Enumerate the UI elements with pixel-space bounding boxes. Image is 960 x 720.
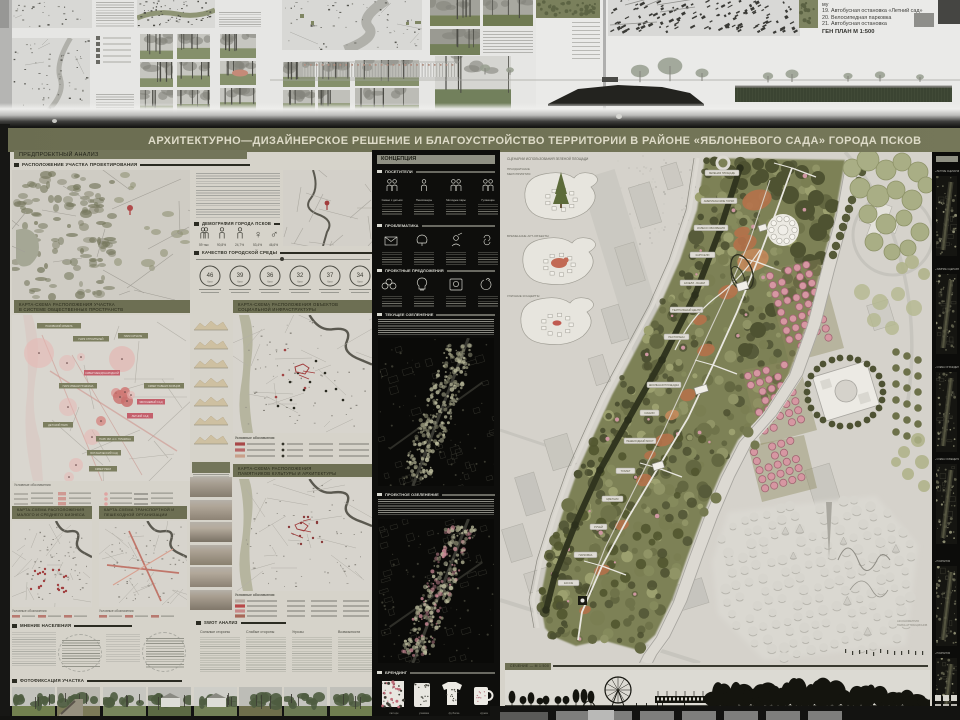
svg-text:балл: балл [237,281,243,284]
svg-text:ЛЕТНИЙ САД: ЛЕТНИЙ САД [132,414,149,418]
svg-text:ПАРК ИМЕНИ ПУШКИНА: ПАРК ИМЕНИ ПУШКИНА [63,384,94,388]
svg-text:КОЛЕСО ОБОЗРЕНИЯ: КОЛЕСО ОБОЗРЕНИЯ [697,226,725,230]
svg-text:балл: балл [357,281,363,284]
svg-text:59 тыс: 59 тыс [199,243,209,247]
svg-text:ПАРК СТРОИТЕЛЕЙ: ПАРК СТРОИТЕЛЕЙ [78,337,103,341]
svg-text:балл: балл [297,281,303,284]
svg-text:СКВЕР МЕЖДУНАРОДНОЙ: СКВЕР МЕЖДУНАРОДНОЙ [85,371,119,375]
svg-text:балл: балл [207,281,213,284]
svg-text:ПАРКОВКА: ПАРКОВКА [579,553,593,557]
svg-text:ТУАЛЕТ: ТУАЛЕТ [621,469,631,473]
svg-text:РУЧЕЙ: РУЧЕЙ [594,525,603,529]
svg-text:ТЕАТРАЛЬНЫЙ ЦЕНТР: ТЕАТРАЛЬНЫЙ ЦЕНТР [672,308,701,312]
svg-text:46: 46 [207,273,214,279]
svg-text:БОТАНИЧЕСКИЙ САД: БОТАНИЧЕСКИЙ САД [90,451,118,455]
svg-text:балл: балл [327,281,333,284]
svg-text:ПЕШЕХОДНЫЙ МОСТ: ПЕШЕХОДНЫЙ МОСТ [626,439,654,443]
svg-text:♂: ♂ [270,229,278,241]
svg-text:34: 34 [357,273,364,279]
svg-text:балл: балл [267,281,273,284]
svg-text:32: 32 [297,273,304,279]
svg-text:ЯБЛОНЕВЫЙ САД: ЯБЛОНЕВЫЙ САД [140,400,163,404]
svg-text:36: 36 [267,273,274,279]
svg-text:53,4%: 53,4% [253,243,262,247]
svg-text:ПСКОВСКИЙ КРЕМЛЬ: ПСКОВСКИЙ КРЕМЛЬ [45,324,73,328]
svg-text:ПАРК КУПАЛЫ: ПАРК КУПАЛЫ [124,334,143,338]
svg-text:КАЧЕЛИ: КАЧЕЛИ [644,411,654,415]
svg-text:КАЧЕЛИ - БАНКИ: КАЧЕЛИ - БАНКИ [684,281,705,285]
svg-text:39: 39 [237,273,244,279]
svg-text:ПАРК ИМ. А.С. ПУШКИНА: ПАРК ИМ. А.С. ПУШКИНА [99,437,131,441]
svg-text:ДЕТСКИЙ ПАРК: ДЕТСКИЙ ПАРК [48,423,68,427]
svg-text:24,7%: 24,7% [235,243,244,247]
svg-text:СКВЕР РЕКИ: СКВЕР РЕКИ [95,467,111,471]
svg-text:АМЕРИКАНСКИЕ ГОРКИ: АМЕРИКАНСКИЕ ГОРКИ [704,199,735,203]
svg-text:ЗЕЛЕНАЯ ПЛОЩАДЬ: ЗЕЛЕНАЯ ПЛОЩАДЬ [709,171,736,175]
svg-text:♀: ♀ [254,229,262,241]
svg-text:СКВЕР ПАВШИХ БОРЦОВ: СКВЕР ПАВШИХ БОРЦОВ [148,384,181,388]
svg-text:РЕСТОРАНЫ: РЕСТОРАНЫ [668,335,685,339]
svg-text:КАССЫ: КАССЫ [564,581,574,585]
svg-text:90,8%: 90,8% [217,243,226,247]
svg-text:46,6%: 46,6% [269,243,278,247]
svg-text:37: 37 [327,273,334,279]
svg-text:КАРУСЕЛИ: КАРУСЕЛИ [696,253,710,257]
svg-text:ШКОЛЬНАЯ ПЛОЩАДКА: ШКОЛЬНАЯ ПЛОЩАДКА [649,383,680,387]
svg-text:ЦВЕТНИК: ЦВЕТНИК [606,497,619,501]
